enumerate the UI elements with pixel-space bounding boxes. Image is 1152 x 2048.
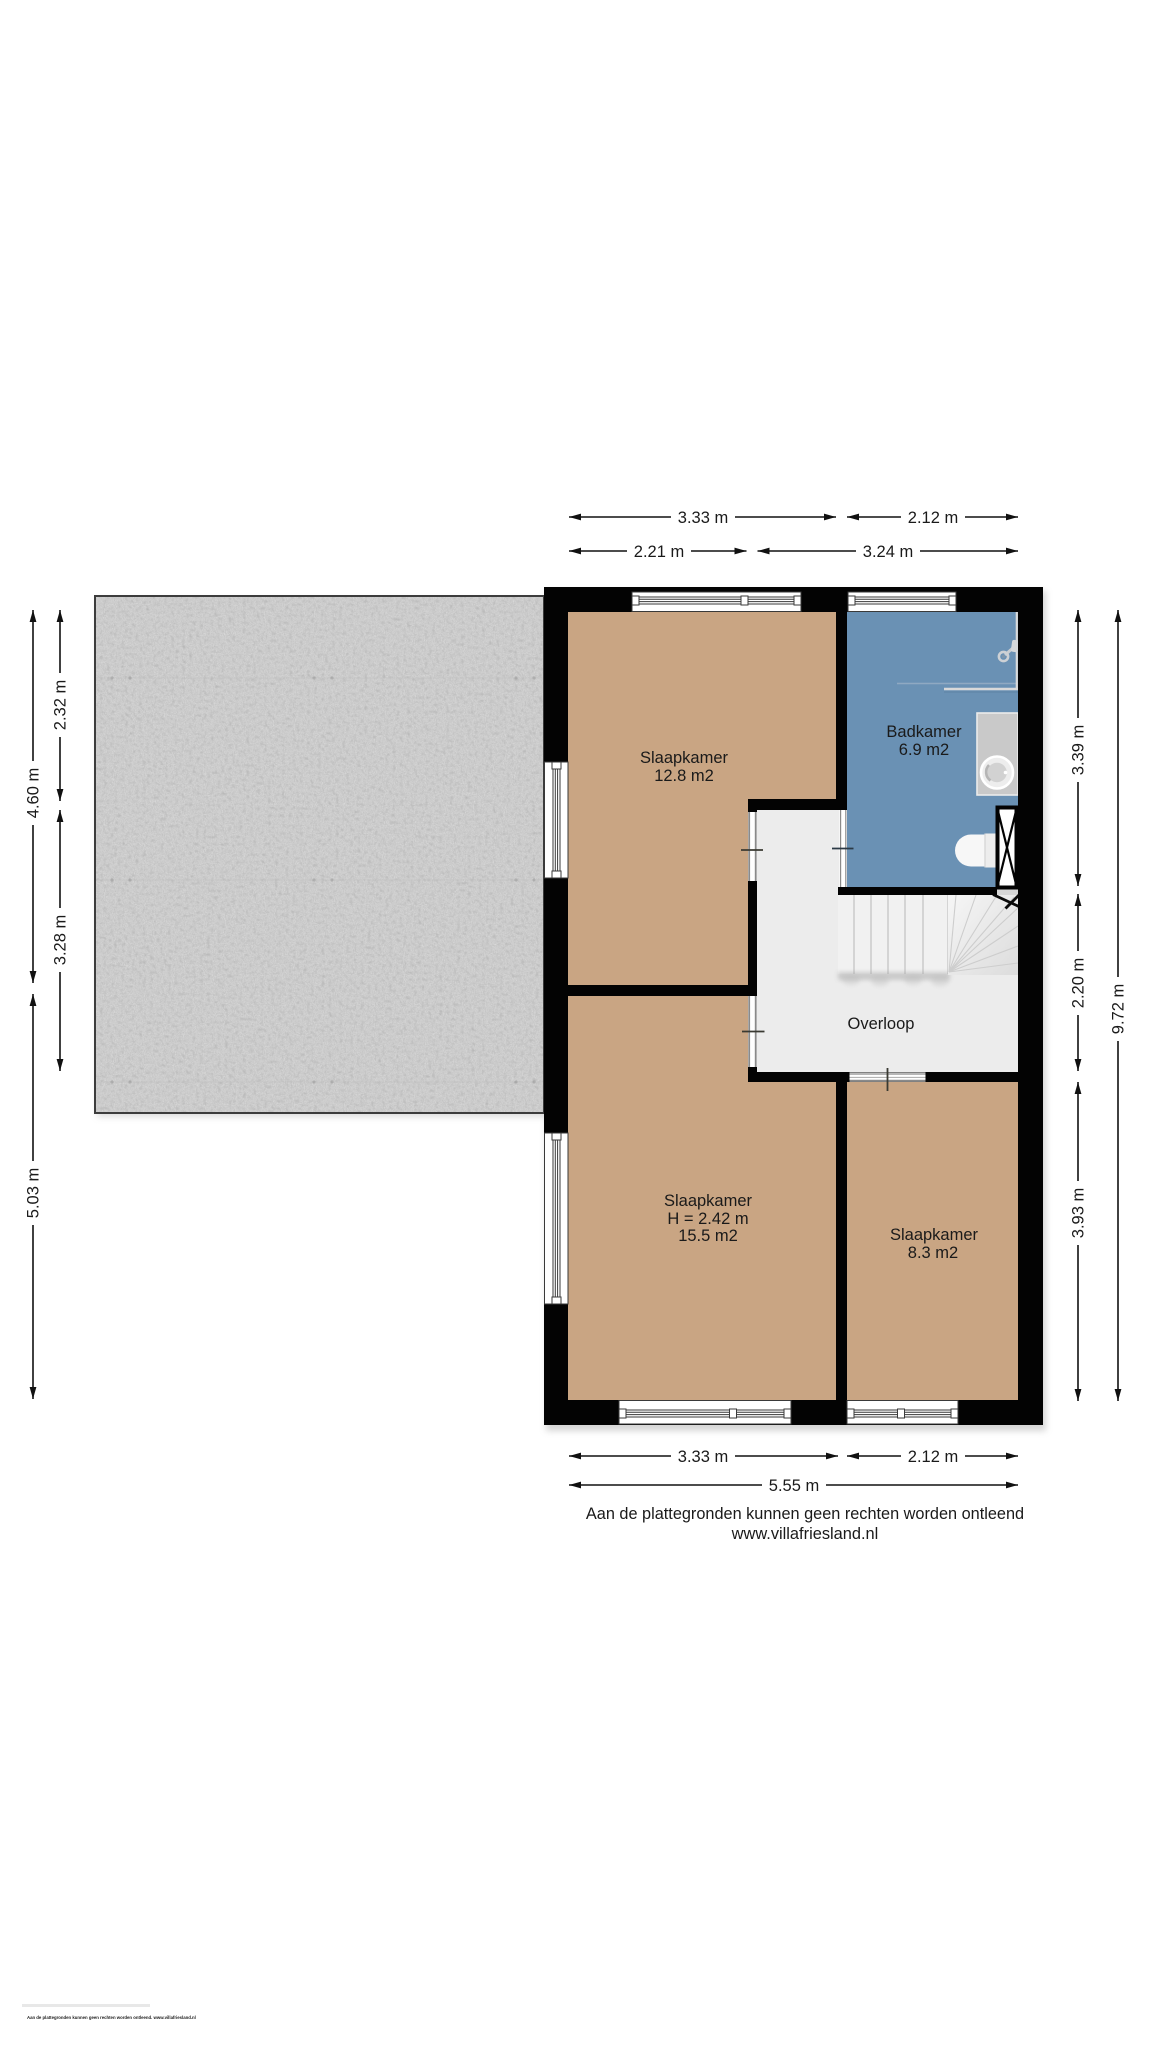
svg-text:15.5 m2: 15.5 m2 [678,1227,738,1245]
svg-text:4.60 m: 4.60 m [25,768,43,818]
svg-text:Slaapkamer: Slaapkamer [640,749,729,767]
svg-text:2.32 m: 2.32 m [52,680,70,730]
svg-text:H = 2.42 m: H = 2.42 m [667,1210,748,1228]
svg-text:Slaapkamer: Slaapkamer [890,1226,979,1244]
svg-text:12.8 m2: 12.8 m2 [654,767,714,785]
svg-text:www.villafriesland.nl: www.villafriesland.nl [731,1525,879,1543]
svg-text:3.28 m: 3.28 m [52,915,70,965]
svg-text:Aan de plattegronden kunnen ge: Aan de plattegronden kunnen geen rechten… [27,2015,196,2020]
svg-text:Badkamer: Badkamer [886,723,962,741]
svg-text:2.21 m: 2.21 m [634,543,684,561]
svg-text:6.9 m2: 6.9 m2 [899,741,949,759]
svg-text:Slaapkamer: Slaapkamer [664,1192,753,1210]
svg-text:Overloop: Overloop [848,1015,915,1033]
svg-text:2.12 m: 2.12 m [908,1448,958,1466]
svg-text:3.33 m: 3.33 m [678,1448,728,1466]
svg-text:2.12 m: 2.12 m [908,509,958,527]
svg-text:3.39 m: 3.39 m [1070,725,1088,775]
svg-text:9.72 m: 9.72 m [1110,984,1128,1034]
svg-text:5.03 m: 5.03 m [25,1168,43,1218]
svg-text:2.20 m: 2.20 m [1070,958,1088,1008]
svg-text:3.33 m: 3.33 m [678,509,728,527]
svg-text:Aan de plattegronden kunnen ge: Aan de plattegronden kunnen geen rechten… [586,1505,1024,1523]
svg-text:8.3 m2: 8.3 m2 [908,1244,958,1262]
svg-text:3.93 m: 3.93 m [1070,1188,1088,1238]
svg-text:3.24 m: 3.24 m [863,543,913,561]
svg-text:5.55 m: 5.55 m [769,1477,819,1495]
